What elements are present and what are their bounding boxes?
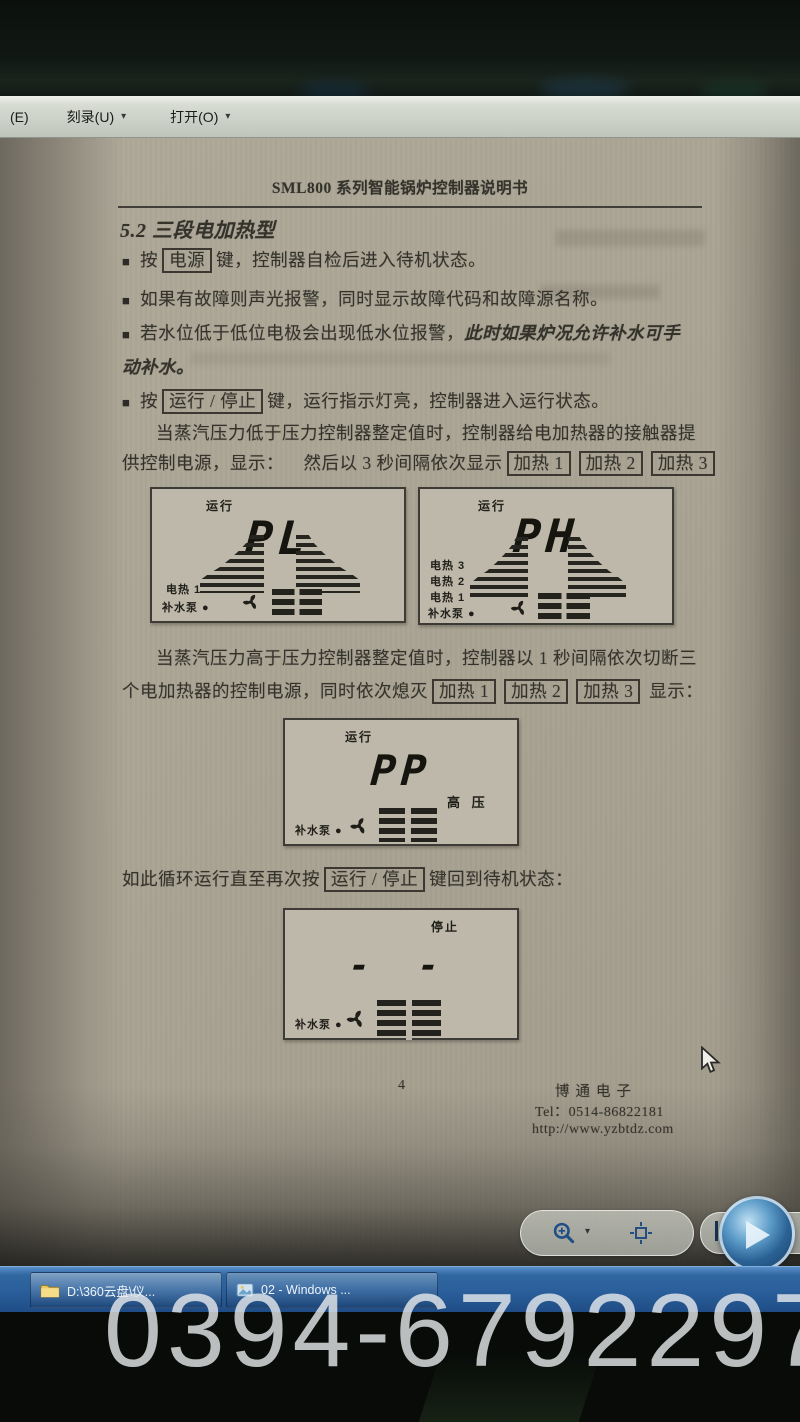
- bullet-square-icon: ■: [122, 395, 130, 410]
- photo-viewer-menubar: (E) 刻录(U) ▾ 打开(O) ▾: [0, 96, 800, 138]
- viewer-toolbar-zoom-group: ▾: [520, 1210, 694, 1256]
- folder-icon: [40, 1282, 60, 1298]
- para-text: 然后以 3 秒间隔依次显示: [304, 453, 503, 473]
- print-bleed-smudge: [190, 352, 610, 365]
- bullet-text: 键，运行指示灯亮，控制器进入运行状态。: [267, 391, 609, 411]
- bullet-run-stop: ■ 按运行 / 停止键，运行指示灯亮，控制器进入运行状态。: [122, 388, 609, 414]
- zoom-magnifier-icon[interactable]: [551, 1220, 577, 1246]
- heater-bars-icon: [272, 589, 322, 615]
- zoom-dropdown-caret-icon[interactable]: ▾: [585, 1226, 590, 1237]
- para-text: 如此循环运行直至再次按: [122, 869, 320, 889]
- heat3-key: 加热 3: [651, 451, 715, 476]
- heat1-key: 加热 1: [507, 451, 571, 476]
- feed-pump-indicator: 补水泵 ●: [295, 822, 343, 838]
- menu-item-email-partial[interactable]: (E): [2, 105, 37, 129]
- menu-label: 打开(O): [170, 107, 218, 127]
- para-text: 个电加热器的控制电源，同时依次熄灭: [122, 681, 428, 701]
- bullet-low-water: ■ 若水位低于低位电极会出现低水位报警，此时如果炉况允许补水可手: [122, 320, 680, 345]
- heater1-indicator: 电热 1: [430, 589, 465, 605]
- run-stop-key: 运行 / 停止: [324, 867, 425, 892]
- bullet-low-water-line2: 动补水。: [122, 354, 194, 379]
- chevron-down-icon: ▾: [225, 111, 230, 122]
- high-pressure-indicator: 高 压: [447, 792, 489, 811]
- lcd-display-pp: 运行 PP 高 压 补水泵 ●: [283, 718, 519, 846]
- watermark-phone-number: 0394-6792297: [104, 1272, 800, 1391]
- heater2-indicator: 电热 2: [430, 573, 465, 589]
- heat1-key: 加热 1: [432, 679, 496, 704]
- feed-pump-indicator: 补水泵 ●: [428, 605, 476, 621]
- heater1-indicator: 电热 1: [166, 581, 201, 597]
- mouse-cursor: [700, 1046, 722, 1076]
- heater3-indicator: 电热 3: [430, 557, 465, 573]
- page-number: 4: [398, 1078, 406, 1094]
- para-pressure-low-line1: 当蒸汽压力低于压力控制器整定值时，控制器给电加热器的接触器提: [156, 420, 696, 445]
- bullet-square-icon: ■: [122, 327, 130, 342]
- bullet-text: 按: [140, 391, 158, 411]
- lcd-value: - -: [284, 946, 519, 986]
- section-title: 5.2 三段电加热型: [120, 214, 275, 243]
- menu-item-burn[interactable]: 刻录(U) ▾: [59, 103, 134, 131]
- menu-item-open[interactable]: 打开(O) ▾: [162, 103, 238, 131]
- lcd-value: PH: [418, 509, 674, 563]
- heater-bars-icon: [538, 593, 590, 621]
- actual-size-icon[interactable]: [629, 1221, 653, 1245]
- lcd-status-label: 停止: [431, 918, 459, 935]
- heater-bars-icon: [379, 808, 437, 842]
- para-pressure-high-line1: 当蒸汽压力高于压力控制器整定值时，控制器以 1 秒间隔依次切断三: [156, 645, 697, 670]
- para-pressure-high-line2: 个电加热器的控制电源，同时依次熄灭加热 1加热 2加热 3 显示：: [122, 678, 703, 704]
- header-rule: [118, 206, 702, 208]
- heat3-key: 加热 3: [576, 679, 640, 704]
- lcd-value: PL: [150, 511, 406, 565]
- menu-label: (E): [10, 109, 29, 125]
- bullet-text: 若水位低于低位电极会出现低水位报警，: [140, 323, 464, 343]
- play-icon: [746, 1221, 770, 1249]
- para-text: 供控制电源，显示：: [122, 453, 284, 473]
- menu-label: 刻录(U): [67, 107, 114, 127]
- para-text: 显示：: [649, 681, 703, 701]
- play-slideshow-button[interactable]: [719, 1196, 795, 1272]
- pump-fan-icon: [341, 1004, 371, 1034]
- footer-tel: Tel：0514-86822181: [535, 1101, 664, 1121]
- manual-header-title: SML800 系列智能锅炉控制器说明书: [0, 176, 800, 198]
- heater-bars-icon: [377, 1000, 441, 1040]
- lcd-status-label: 运行: [345, 728, 373, 745]
- pump-fan-icon: [506, 595, 532, 621]
- run-stop-key: 运行 / 停止: [162, 389, 263, 414]
- para-loop: 如此循环运行直至再次按运行 / 停止键回到待机状态：: [122, 866, 573, 892]
- monitor-bezel-top: [0, 0, 800, 104]
- lcd-display-standby: 停止 - - 补水泵 ●: [283, 908, 519, 1040]
- footer-url: http://www.yzbtdz.com: [532, 1122, 674, 1138]
- bullet-text: 如果有故障则声光报警，同时显示故障代码和故障源名称。: [140, 289, 608, 309]
- bullet-power: ■ 按电源键，控制器自检后进入待机状态。: [122, 247, 486, 273]
- bullet-square-icon: ■: [122, 293, 130, 308]
- print-bleed-smudge: [555, 230, 705, 246]
- chevron-down-icon: ▾: [121, 111, 126, 122]
- feed-pump-indicator: 补水泵 ●: [295, 1016, 343, 1032]
- pump-fan-icon: [345, 812, 373, 840]
- bullet-text-italic: 此时如果炉况允许补水可手: [464, 323, 680, 343]
- feed-pump-indicator: 补水泵 ●: [162, 599, 210, 615]
- lcd-display-ph: 运行 PH 电热 3 电热 2 电热 1 补水泵 ●: [418, 487, 674, 625]
- bullet-text: 按: [140, 250, 158, 270]
- pump-fan-icon: [238, 589, 264, 615]
- bullet-text: 键，控制器自检后进入待机状态。: [216, 250, 486, 270]
- bullet-square-icon: ■: [122, 254, 130, 269]
- footer-company: 博通电子: [555, 1080, 637, 1101]
- lcd-value: PP: [283, 746, 518, 795]
- para-text: 键回到待机状态：: [429, 869, 573, 889]
- para-pressure-low-line2: 供控制电源，显示： 然后以 3 秒间隔依次显示加热 1加热 2加热 3: [122, 450, 719, 476]
- power-key: 电源: [162, 248, 212, 273]
- heat2-key: 加热 2: [579, 451, 643, 476]
- heat2-key: 加热 2: [504, 679, 568, 704]
- bullet-fault: ■ 如果有故障则声光报警，同时显示故障代码和故障源名称。: [122, 286, 608, 311]
- lcd-display-pl: 运行 PL 电热 1 补水泵 ●: [150, 487, 406, 623]
